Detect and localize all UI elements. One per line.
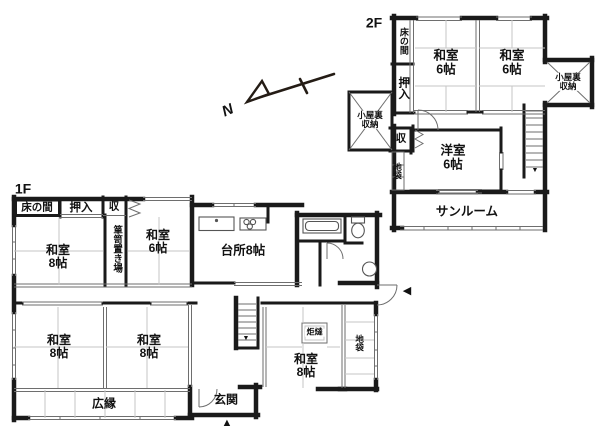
stairs-down-marker-2f: ▼ — [532, 167, 539, 175]
label-line2: 収納 — [553, 82, 583, 91]
room-label-tokonoma-1f: 床の間 — [21, 202, 53, 213]
room-label-closet-2f: 収 — [396, 133, 407, 144]
room-name: 和室 — [499, 50, 524, 64]
room-size: 6帖 — [499, 63, 524, 77]
room-name: 和室 — [433, 50, 458, 64]
room-label-washitsu8-north-1f: 和室 8帖 — [46, 244, 70, 270]
floor-plan-canvas: 2F 床の間 押入 和室 6帖 和室 6帖 小屋裏 収納 小屋裏 収納 収 地袋… — [0, 0, 600, 443]
room-size: 8帖 — [137, 347, 161, 360]
stairs-down-marker-1f: ▼ — [243, 335, 250, 343]
north-arrow — [247, 74, 334, 102]
room-size: 8帖 — [47, 347, 71, 360]
room-label-attic-storage-left-2f: 小屋裏 収納 — [355, 111, 385, 129]
room-label-washitsu8-southeast-1f: 和室 8帖 — [294, 353, 318, 379]
room-label-closet-1f: 収 — [109, 201, 120, 212]
room-size: 6帖 — [433, 63, 458, 77]
room-size: 6帖 — [146, 242, 170, 255]
label-line2: 収納 — [355, 120, 385, 129]
room-name: 洋室 — [440, 145, 465, 159]
stairs-2f — [526, 111, 543, 167]
room-label-washitsu6-b-2f: 和室 6帖 — [499, 50, 524, 77]
room-label-hiroen-1f: 広縁 — [92, 398, 116, 411]
room-name: 和室 — [47, 334, 71, 347]
room-name: 和室 — [46, 244, 70, 257]
side-entrance-marker: ◀ — [403, 286, 411, 298]
floor-label-2f: 2F — [366, 15, 382, 30]
room-name: 和室 — [294, 353, 318, 366]
room-label-sunroom-2f: サンルーム — [436, 205, 498, 219]
room-label-attic-storage-right-2f: 小屋裏 収納 — [553, 73, 583, 91]
main-entrance-marker: ▲ — [222, 418, 233, 430]
room-label-genkan-1f: 玄関 — [214, 394, 238, 407]
kitchen-fixtures — [199, 217, 266, 231]
room-name: 和室 — [137, 334, 161, 347]
room-size: 6帖 — [440, 158, 465, 172]
room-label-kitchen-1f: 台所8帖 — [221, 244, 265, 258]
room-size: 8帖 — [46, 257, 70, 270]
room-label-jibukuro-2f: 地袋 — [392, 163, 401, 180]
room-label-washitsu6-1f: 和室 6帖 — [146, 229, 170, 255]
room-label-oshiire-2f: 押入 — [397, 77, 409, 100]
room-label-tokonoma-2f: 床の間 — [398, 28, 408, 55]
bath-fixtures — [303, 217, 377, 276]
kotatsu-label-1f: 炬燵 — [305, 328, 325, 337]
room-label-washitsu8-south-1f: 和室 8帖 — [137, 334, 161, 360]
room-label-washitsu6-a-2f: 和室 6帖 — [433, 50, 458, 77]
room-label-tansu-okiba-1f: 箪笥置き場 — [111, 225, 121, 273]
room-label-oshiire-1f: 押入 — [70, 202, 93, 214]
room-label-jibukuro-1f: 地袋 — [354, 335, 363, 352]
room-label-washitsu8-southwest-1f: 和室 8帖 — [47, 334, 71, 360]
room-label-youshitsu-2f: 洋室 6帖 — [440, 145, 465, 172]
room-size: 8帖 — [294, 366, 318, 379]
floor-label-1f: 1F — [15, 181, 31, 196]
room-name: 和室 — [146, 229, 170, 242]
